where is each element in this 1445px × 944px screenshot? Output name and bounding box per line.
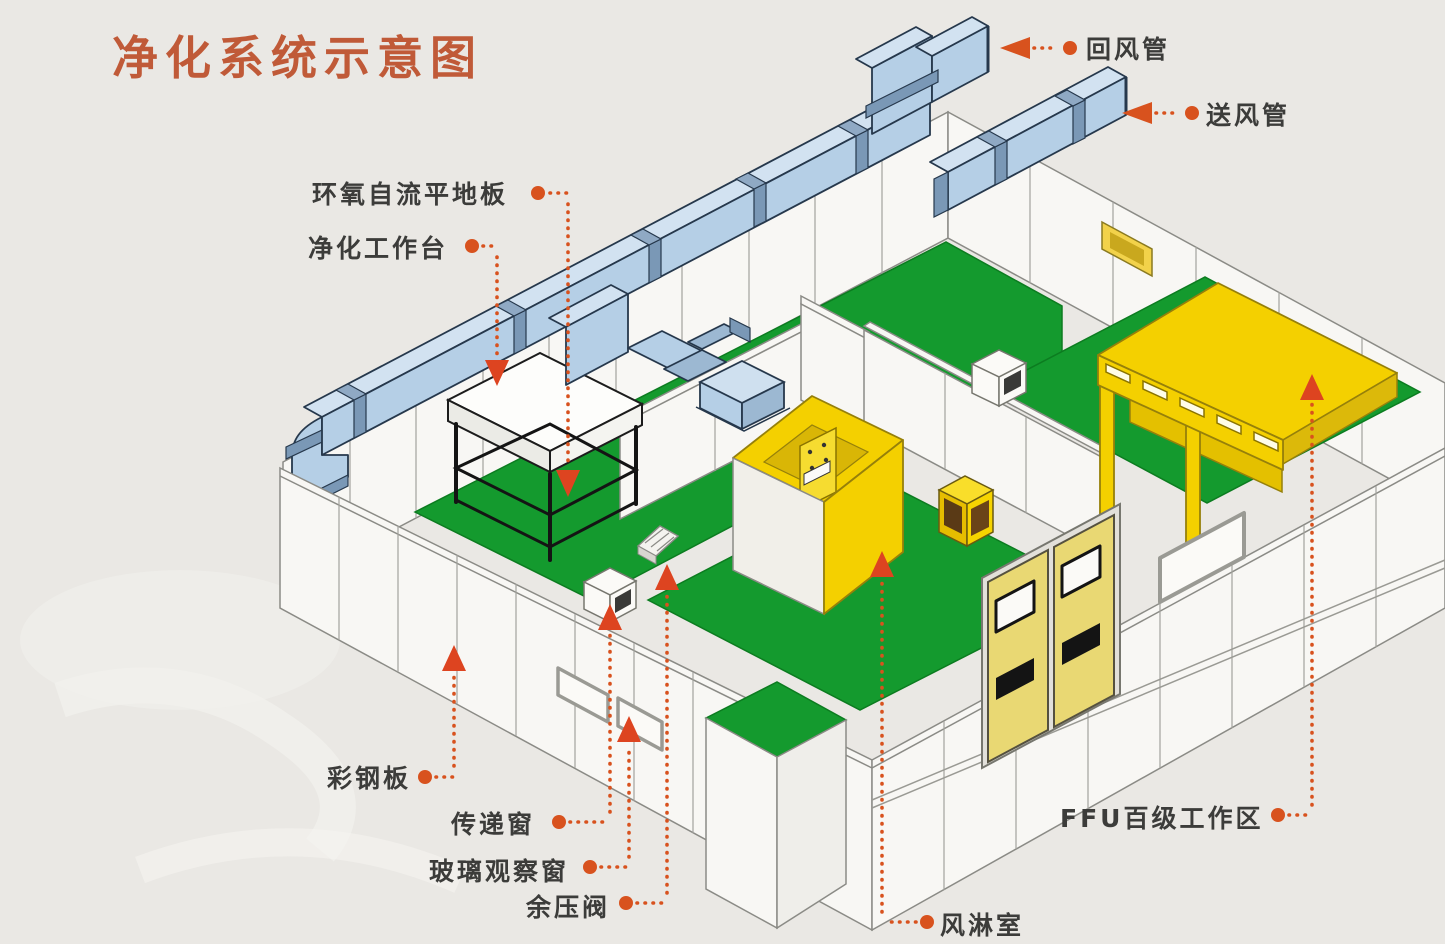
label-clean-workbench: 净化工作台 bbox=[308, 234, 448, 263]
door-right bbox=[1054, 515, 1114, 727]
diagram-canvas: 净化系统示意图 回风管 送风管 环氧自流平地板 净化工作台 彩钢板 传递窗 玻璃… bbox=[0, 0, 1445, 944]
label-air-shower: 风淋室 bbox=[940, 911, 1024, 940]
label-transfer-window: 传递窗 bbox=[450, 810, 535, 839]
label-color-steel-panel: 彩钢板 bbox=[327, 764, 411, 793]
label-return-duct: 回风管 bbox=[1086, 35, 1170, 64]
supply-duct-cap bbox=[934, 172, 948, 217]
diagram-title: 净化系统示意图 bbox=[112, 31, 483, 85]
front-vestibule-block bbox=[706, 682, 846, 928]
label-glass-observation-window: 玻璃观察窗 bbox=[429, 857, 569, 886]
label-epoxy-floor: 环氧自流平地板 bbox=[312, 180, 508, 209]
label-residual-pressure-valve: 余压阀 bbox=[525, 893, 610, 922]
cleanroom-system-diagram: 净化系统示意图 回风管 送风管 环氧自流平地板 净化工作台 彩钢板 传递窗 玻璃… bbox=[0, 0, 1445, 944]
ffu-leg bbox=[1100, 384, 1114, 524]
label-supply-duct: 送风管 bbox=[1206, 101, 1290, 130]
pass-box bbox=[939, 476, 993, 546]
door-left bbox=[988, 550, 1048, 762]
label-ffu-area: FFU百级工作区 bbox=[1060, 804, 1263, 833]
